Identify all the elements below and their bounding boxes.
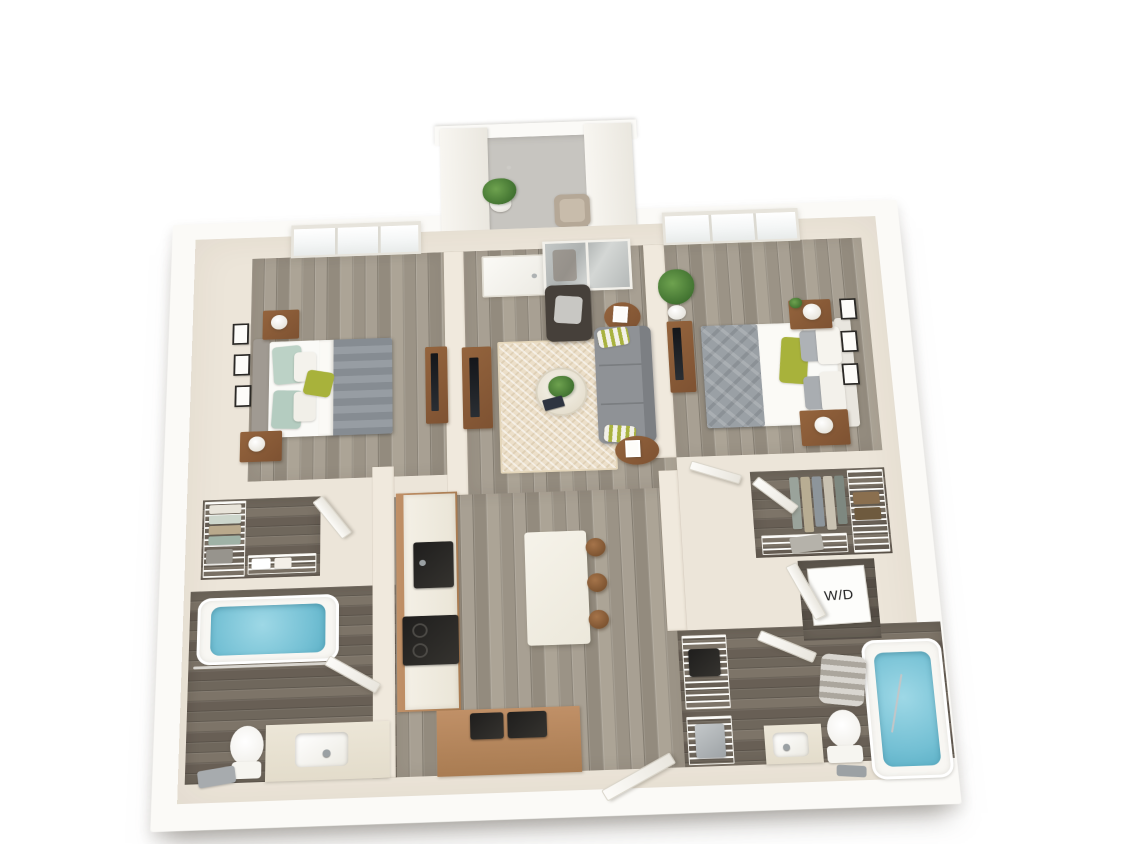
burner: [412, 623, 428, 638]
entry-pier-right: [584, 123, 637, 236]
bed1-pillow-white: [293, 391, 316, 422]
bath2-tub-water: [873, 651, 941, 767]
bedroom2-door: [689, 461, 742, 485]
bath2-shower-curtain: [818, 653, 866, 707]
wall-art-frame: [841, 363, 860, 385]
wall-art-frame: [234, 385, 251, 407]
floor-plan-scene: W/D: [0, 0, 1125, 844]
bed1-pillow-green-accent: [302, 369, 335, 398]
side-table-frame: [625, 440, 641, 457]
kitchen-countertop: [403, 493, 459, 710]
door-knob: [532, 273, 538, 278]
closet1-towels: [251, 558, 270, 569]
closet1-clothes: [208, 535, 240, 545]
sofa-cushion-seam: [601, 402, 644, 405]
counter-electronics: [507, 711, 547, 739]
mirror-divider: [585, 242, 590, 288]
bed2-pillow-white: [815, 326, 842, 364]
bed1-tv: [431, 353, 439, 411]
mirror-reflection: [552, 249, 577, 281]
steel-basket-stack: [695, 723, 727, 758]
bath2-sink: [772, 732, 809, 758]
bath2-toilet-tank: [827, 745, 864, 763]
closet1-clothes: [209, 515, 241, 525]
bedroom2-window: [662, 208, 800, 245]
apartment-plan: W/D: [150, 200, 962, 832]
bedroom1-window: [291, 221, 421, 258]
window-mullion: [378, 226, 381, 253]
front-door: [481, 254, 546, 297]
range-cooktop: [402, 615, 459, 666]
bath1-tub-water: [210, 603, 326, 656]
bed1-headboard: [251, 339, 270, 442]
entry-mirror-closet: [542, 239, 633, 293]
unit-interior: W/D: [177, 216, 933, 804]
bed2-gray-throw: [701, 324, 766, 428]
wall-art-frame: [839, 298, 857, 319]
closet2-basket: [854, 507, 882, 520]
closet1-clothes: [209, 504, 241, 514]
wall-art-frame: [233, 354, 250, 376]
burner: [412, 643, 428, 658]
linen-shelf-box: [688, 648, 721, 677]
counter-electronics: [470, 712, 504, 739]
bath1-sink: [295, 732, 348, 768]
bath2-towel: [837, 765, 867, 778]
bed1-duvet: [329, 338, 392, 436]
entry-chair-cushion: [559, 198, 585, 222]
closet1-basket: [206, 549, 233, 564]
window-mullion: [753, 213, 758, 240]
living-tv: [469, 357, 480, 417]
sofa-cushion-seam: [599, 363, 641, 366]
wall-art-frame: [840, 330, 859, 352]
bath1-toilet-tank: [231, 761, 261, 779]
wall-art-frame: [232, 323, 249, 345]
window-mullion: [335, 228, 338, 255]
window-mullion: [708, 215, 713, 242]
closet1-clothes: [209, 525, 241, 535]
closet1-towels: [274, 557, 291, 568]
kitchen-island: [524, 530, 590, 645]
closet2-basket: [853, 491, 881, 504]
entry-pier-left: [440, 128, 490, 241]
armchair-pillow: [554, 295, 583, 324]
side-table-frame: [613, 306, 629, 323]
